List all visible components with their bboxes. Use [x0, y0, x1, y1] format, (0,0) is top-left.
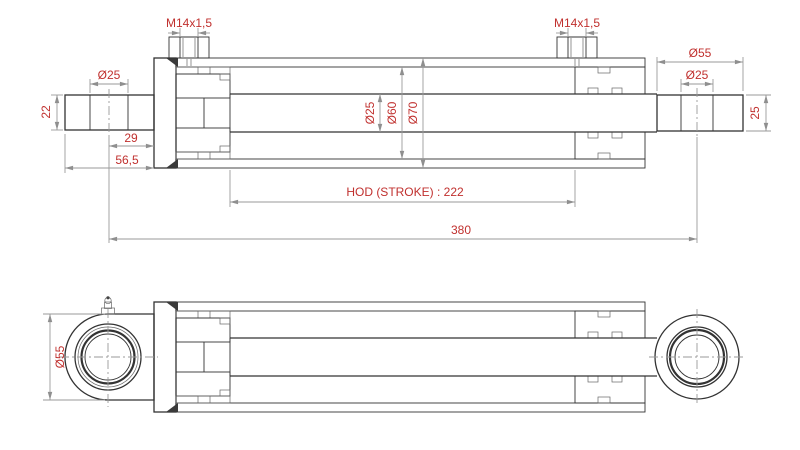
dimension-left-eye-width: 22: [39, 95, 63, 130]
dim-label-right-eye-bore: Ø25: [686, 68, 709, 82]
dim-label-bottom-eye-od: Ø55: [53, 345, 67, 368]
spherical-eye-left: [60, 296, 158, 407]
dim-label-right-eye-width: 25: [748, 106, 762, 120]
dim-label-left-eye-width: 22: [39, 105, 53, 119]
dimension-right-eye-width: 25: [746, 95, 771, 131]
spherical-eye-right: [649, 309, 745, 405]
mounting-eye-right: [657, 88, 743, 137]
dimension-rod-diameter: Ø25: [363, 94, 380, 132]
dim-label-right-eye-od: Ø55: [689, 46, 712, 60]
hydraulic-cylinder-drawing: M14x1,5 M14x1,5 Ø25 22 29 56: [0, 0, 800, 450]
oil-port-right: [557, 37, 597, 66]
dim-label-port-right: M14x1,5: [554, 16, 600, 30]
dimension-56-5: 56,5: [65, 134, 154, 173]
top-view: M14x1,5 M14x1,5 Ø25 22 29 56: [39, 16, 771, 243]
dimension-bore-diameter: Ø60: [385, 67, 402, 159]
dim-label-29: 29: [124, 131, 138, 145]
dim-label-rod-diameter: Ø25: [363, 101, 377, 124]
dimension-barrel-od: Ø70: [406, 58, 423, 168]
dimension-port-right: M14x1,5: [554, 16, 600, 36]
dim-label-overall-length: 380: [451, 223, 471, 237]
dim-label-left-eye-bore: Ø25: [98, 68, 121, 82]
dim-label-56-5: 56,5: [115, 153, 139, 167]
mounting-eye-left: [65, 89, 154, 136]
bottom-view: Ø55: [43, 296, 745, 412]
dimension-port-left: M14x1,5: [166, 16, 212, 36]
dim-label-barrel-od: Ø70: [406, 101, 420, 124]
technical-drawing-page: M14x1,5 M14x1,5 Ø25 22 29 56: [0, 0, 800, 450]
dim-label-bore-diameter: Ø60: [385, 101, 399, 124]
dimension-stroke: HOD (STROKE) : 222: [230, 170, 575, 207]
dim-label-stroke: HOD (STROKE) : 222: [346, 185, 464, 199]
dim-label-port-left: M14x1,5: [166, 16, 212, 30]
dimension-29: 29: [109, 131, 154, 146]
